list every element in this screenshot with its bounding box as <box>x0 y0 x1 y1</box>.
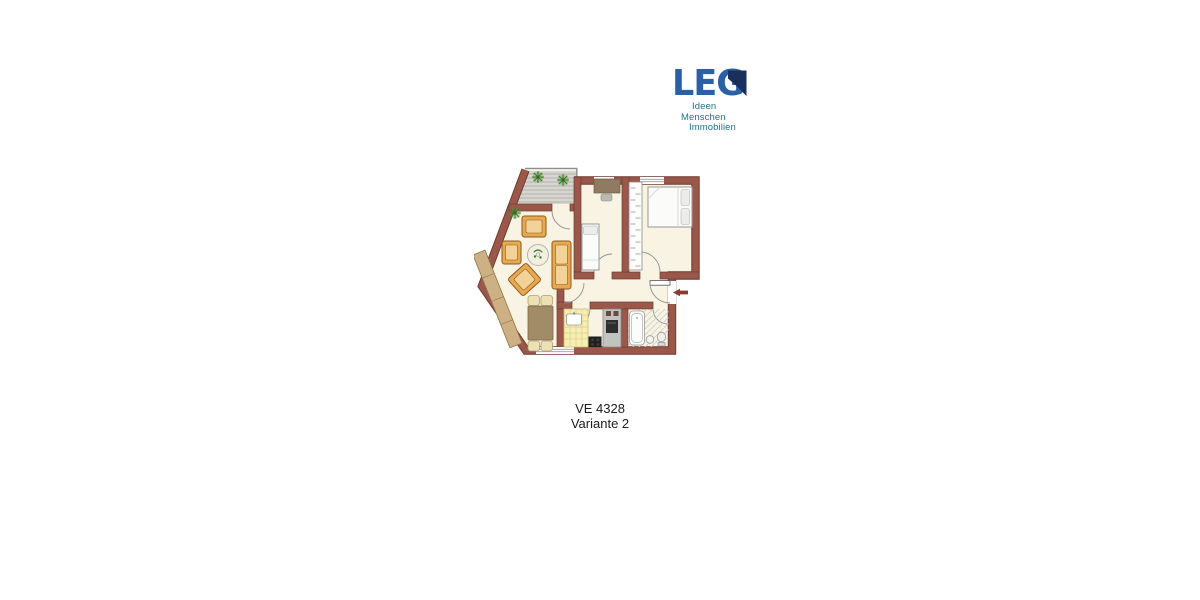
coffee-table <box>528 245 549 266</box>
toilet <box>657 332 665 342</box>
plant <box>533 172 544 183</box>
dining-chair <box>528 341 540 351</box>
sofa <box>552 241 571 289</box>
armchair <box>522 216 546 237</box>
leg-logo: LEG Ideen Menschen Immobilien <box>672 66 762 134</box>
plant <box>510 208 521 219</box>
dining-chair <box>528 296 540 306</box>
kitchen-sink <box>567 314 582 325</box>
leg-logo-mark: LEG <box>672 66 750 100</box>
stove <box>589 337 602 348</box>
variant-label: Variante 2 <box>0 416 1200 431</box>
dining-chair <box>541 341 553 351</box>
dining-table <box>528 306 553 340</box>
floor-plan <box>474 162 704 367</box>
tagline-line: Immobilien <box>689 123 762 134</box>
logo-tagline: Ideen Menschen Immobilien <box>672 102 762 134</box>
dining-chair <box>541 296 553 306</box>
washbasin <box>646 336 654 344</box>
oven <box>606 320 618 333</box>
canvas: LEG Ideen Menschen Immobilien <box>0 0 1200 600</box>
unit-number: VE 4328 <box>0 401 1200 416</box>
desk-chair <box>601 194 612 201</box>
desk-cabinet <box>594 179 620 193</box>
plant <box>558 175 569 186</box>
wardrobe <box>629 182 642 270</box>
tagline-line: Ideen <box>692 102 762 113</box>
armchair <box>502 241 521 264</box>
plan-caption: VE 4328 Variante 2 <box>0 401 1200 431</box>
